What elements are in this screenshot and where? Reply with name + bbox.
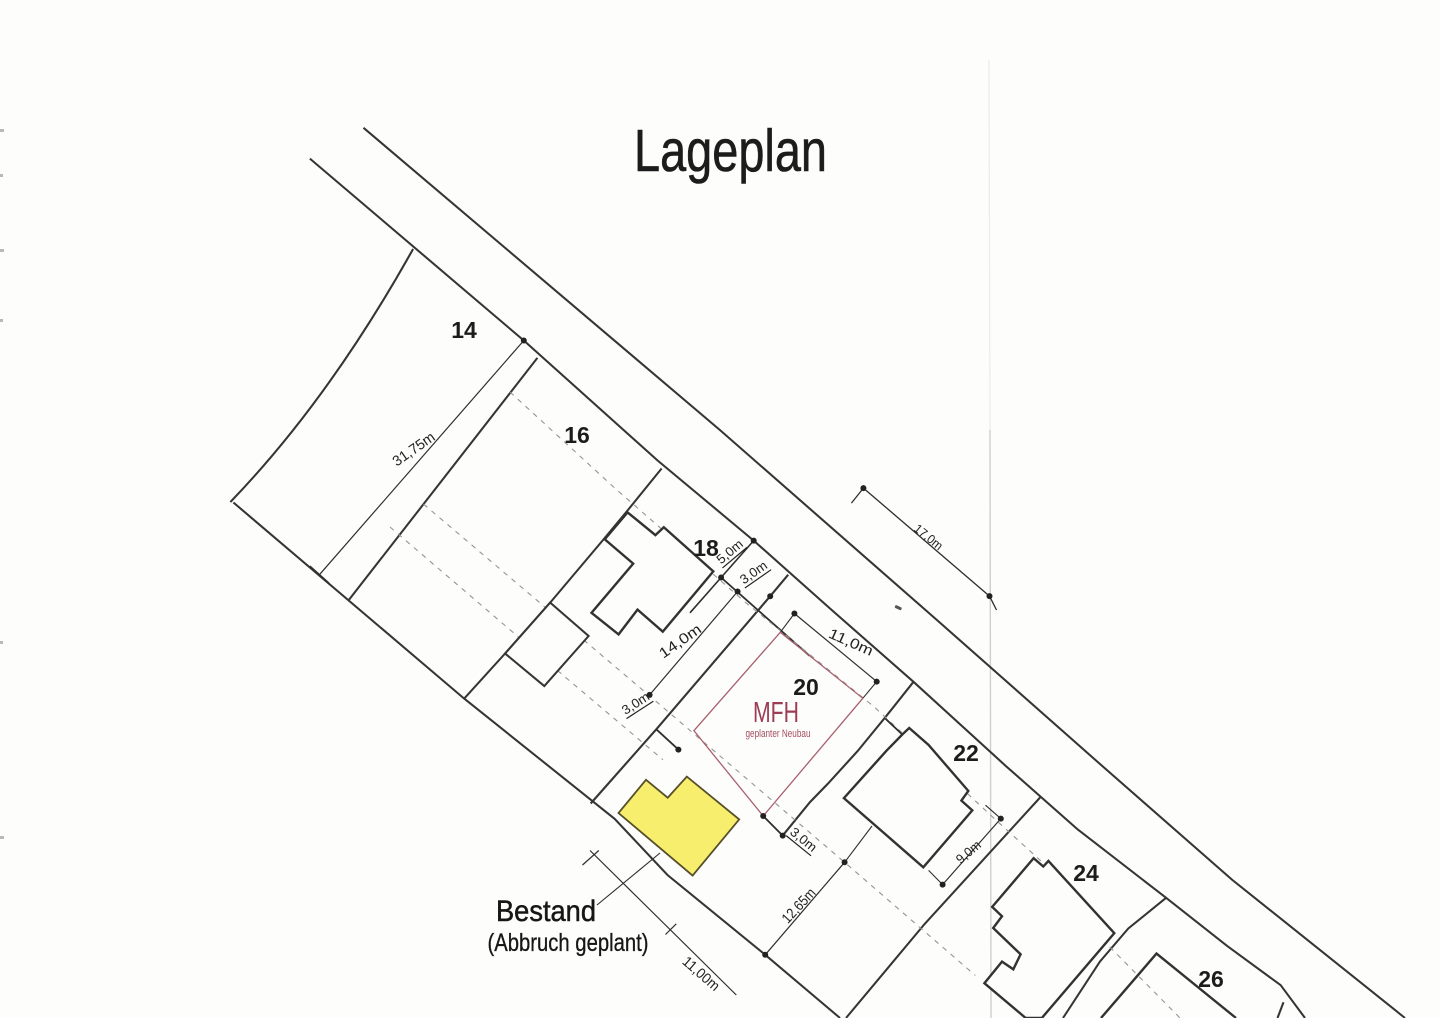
svg-text:18: 18	[693, 535, 719, 561]
svg-text:MFH: MFH	[753, 697, 799, 729]
svg-text:26: 26	[1198, 966, 1224, 992]
svg-text:Bestand: Bestand	[496, 895, 596, 928]
svg-text:14: 14	[451, 317, 477, 343]
svg-text:22: 22	[953, 740, 979, 766]
svg-text:24: 24	[1073, 860, 1099, 886]
svg-text:16: 16	[564, 422, 590, 448]
svg-text:(Abbruch geplant): (Abbruch geplant)	[488, 929, 649, 957]
svg-text:Lageplan: Lageplan	[634, 118, 827, 184]
svg-text:geplanter Neubau: geplanter Neubau	[746, 728, 811, 740]
